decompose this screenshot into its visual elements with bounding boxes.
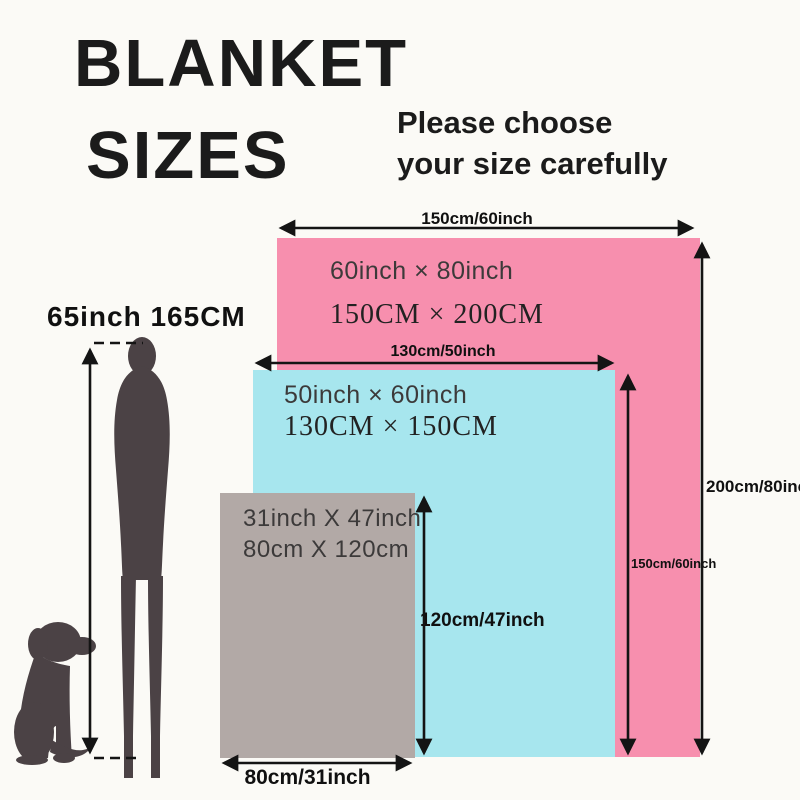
large-blanket-cm-label: 150CM × 200CM — [330, 299, 544, 331]
large-height-dimension-label: 200cm/80inch — [706, 477, 800, 497]
medium-width-dimension-label: 130cm/50inch — [273, 343, 613, 361]
subtitle-line-1: Please choose — [397, 102, 668, 143]
medium-blanket-inch-label: 50inch × 60inch — [284, 381, 467, 410]
person-height-label: 65inch 165CM — [47, 301, 246, 333]
large-width-dimension-label: 150cm/60inch — [277, 209, 677, 229]
page-title-line-2: SIZES — [86, 122, 290, 189]
small-height-dimension-label: 120cm/47inch — [420, 610, 545, 632]
blanket-sizes-infographic: { "page": { "title_line1": "BLANKET", "t… — [0, 0, 800, 800]
large-blanket-inch-label: 60inch × 80inch — [330, 257, 513, 286]
medium-blanket-cm-label: 130CM × 150CM — [284, 411, 498, 443]
dog-silhouette-icon — [12, 618, 116, 766]
page-title-line-1: BLANKET — [74, 30, 408, 97]
small-width-dimension-label: 80cm/31inch — [220, 766, 395, 790]
medium-height-dimension-label: 150cm/60inch — [631, 556, 716, 571]
small-blanket-cm-label: 80cm X 120cm — [243, 536, 409, 564]
subtitle-line-2: your size carefully — [397, 143, 668, 184]
subtitle: Please choose your size carefully — [397, 102, 668, 184]
small-blanket-inch-label: 31inch X 47inch — [243, 505, 421, 533]
